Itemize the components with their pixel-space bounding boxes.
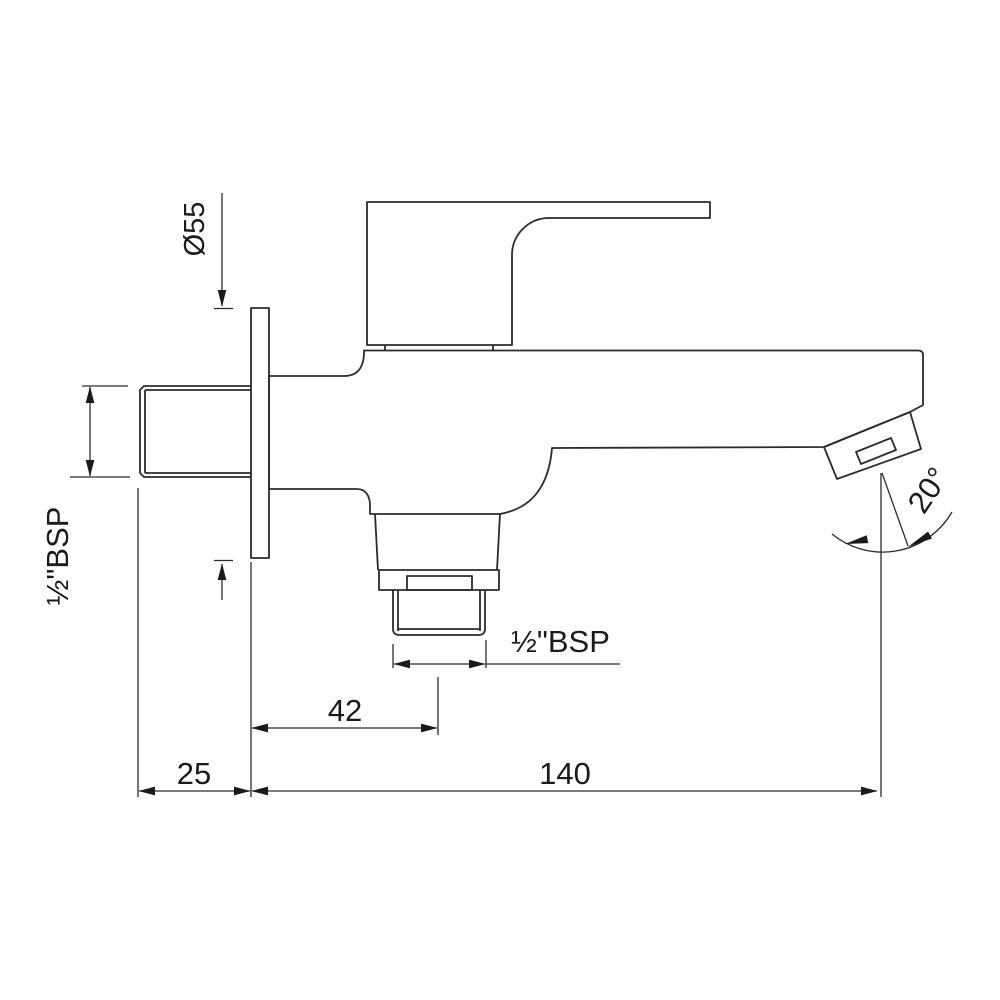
dim-inlet-thread-label: ½"BSP: [40, 507, 75, 606]
inlet-nipple-outline: [140, 386, 251, 477]
dim-inlet-thread: ½"BSP: [40, 386, 130, 605]
wall-flange: [251, 308, 269, 558]
dim-140: 140: [252, 756, 877, 791]
outlet-housing-sides: [375, 514, 500, 570]
angle-reference-slant: [882, 473, 908, 546]
outlet-collar: [379, 570, 499, 590]
technical-drawing-canvas: Ø55 ½"BSP ½"BSP 42 25 140 20: [0, 0, 1000, 1000]
dim-25-label: 25: [177, 756, 211, 791]
handle-lever-outline: [367, 202, 710, 345]
outlet-collar-detail: [407, 576, 472, 590]
inlet-nipple-thread-lines: [145, 390, 251, 473]
angle-arc-arrow-right: [908, 532, 932, 548]
dim-flange-diameter: Ø55: [179, 193, 233, 600]
dim-42: 42: [252, 677, 438, 735]
faucet-dimension-diagram: Ø55 ½"BSP ½"BSP 42 25 140 20: [0, 0, 1000, 1000]
dim-25: 25: [139, 756, 250, 791]
outlet-nipple-thread-lines: [398, 590, 480, 631]
dim-angle-label: 20°: [901, 461, 956, 519]
dim-42-label: 42: [328, 693, 362, 728]
dim-flange-diameter-label: Ø55: [179, 202, 211, 257]
dim-140-label: 140: [539, 756, 591, 791]
dim-outlet-thread: ½"BSP: [393, 624, 620, 668]
dim-outlet-thread-label: ½"BSP: [511, 624, 610, 659]
angle-arc-arrow-left: [845, 535, 868, 544]
angle-arc: [832, 512, 952, 552]
faucet-body-outline: [269, 351, 923, 515]
